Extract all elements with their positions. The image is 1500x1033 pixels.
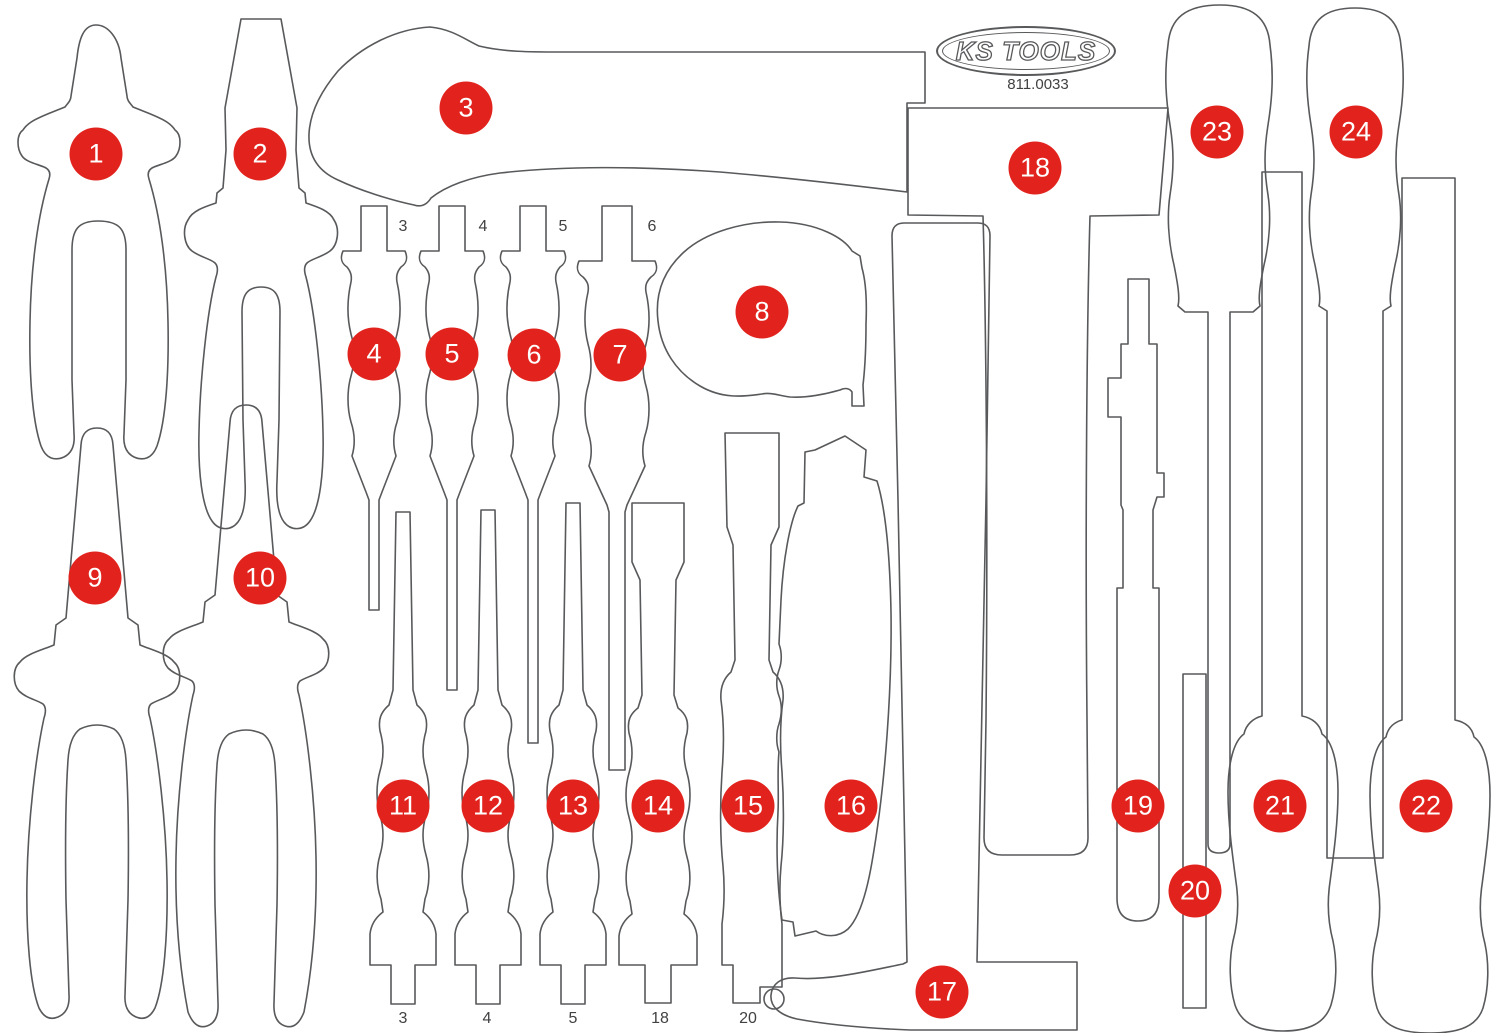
long-nose-pliers-outline-9 bbox=[14, 428, 180, 1018]
marker-10: 10 bbox=[234, 552, 287, 605]
marker-13: 13 bbox=[547, 780, 600, 833]
size-label-top-4: 4 bbox=[479, 218, 488, 236]
part-number: 811.0033 bbox=[990, 76, 1086, 93]
pin-punch-outline-11 bbox=[370, 512, 436, 1004]
size-label-bottom-4: 4 bbox=[483, 1010, 492, 1028]
marker-19: 19 bbox=[1112, 780, 1165, 833]
size-label-top-5: 5 bbox=[559, 218, 568, 236]
mallet-outline-18 bbox=[908, 108, 1168, 855]
size-label-top-6: 6 bbox=[648, 218, 657, 236]
size-label-bottom-5: 5 bbox=[569, 1010, 578, 1028]
marker-3: 3 bbox=[440, 82, 493, 135]
marker-6: 6 bbox=[508, 329, 561, 382]
marker-12: 12 bbox=[462, 780, 515, 833]
tool-outlines-svg bbox=[0, 0, 1500, 1033]
marker-23: 23 bbox=[1191, 106, 1244, 159]
size-label-bottom-3: 3 bbox=[399, 1010, 408, 1028]
marker-16: 16 bbox=[825, 780, 878, 833]
size-label-bottom-20: 20 bbox=[739, 1010, 757, 1028]
marker-22: 22 bbox=[1400, 780, 1453, 833]
long-nose-pliers-outline-10 bbox=[163, 405, 329, 1027]
pin-punch-outline-12 bbox=[455, 510, 521, 1004]
marker-5: 5 bbox=[426, 328, 479, 381]
screwdriver-outline-22 bbox=[1370, 178, 1490, 1033]
marker-11: 11 bbox=[377, 780, 430, 833]
screwdriver-outline-21 bbox=[1228, 172, 1338, 1031]
size-label-top-3: 3 bbox=[399, 218, 408, 236]
marker-4: 4 bbox=[348, 328, 401, 381]
marker-15: 15 bbox=[722, 780, 775, 833]
marker-7: 7 bbox=[594, 329, 647, 382]
flat-bar-outline-20 bbox=[1183, 674, 1206, 1008]
pin-punch-outline-5 bbox=[419, 206, 484, 690]
marker-2: 2 bbox=[234, 128, 287, 181]
marker-18: 18 bbox=[1009, 142, 1062, 195]
marker-1: 1 bbox=[70, 128, 123, 181]
size-label-bottom-18: 18 bbox=[651, 1010, 669, 1028]
tool-tray-diagram: KS TOOLS 811.0033 1234567891011121314151… bbox=[0, 0, 1500, 1033]
marker-17: 17 bbox=[916, 966, 969, 1019]
pliers-outline-2 bbox=[185, 19, 338, 529]
pin-punch-outline-4 bbox=[341, 206, 406, 610]
marker-14: 14 bbox=[632, 780, 685, 833]
ks-tools-logo: KS TOOLS bbox=[936, 26, 1116, 76]
utility-knife-outline-16 bbox=[777, 436, 891, 936]
marker-20: 20 bbox=[1169, 865, 1222, 918]
marker-24: 24 bbox=[1330, 106, 1383, 159]
marker-9: 9 bbox=[69, 552, 122, 605]
adjustable-wrench-outline-3 bbox=[309, 27, 925, 206]
pin-punch-outline-7 bbox=[577, 206, 656, 770]
marker-21: 21 bbox=[1254, 780, 1307, 833]
ks-tools-logo-text: KS TOOLS bbox=[942, 32, 1110, 70]
hammer-outline-17 bbox=[771, 223, 1077, 1030]
marker-8: 8 bbox=[736, 286, 789, 339]
wood-chisel-outline-15 bbox=[721, 433, 784, 1003]
pin-punch-outline-6 bbox=[500, 206, 565, 743]
flat-chisel-outline-14 bbox=[619, 503, 697, 1003]
combination-pliers-outline-1 bbox=[18, 25, 180, 459]
pin-punch-outline-13 bbox=[540, 503, 606, 1004]
